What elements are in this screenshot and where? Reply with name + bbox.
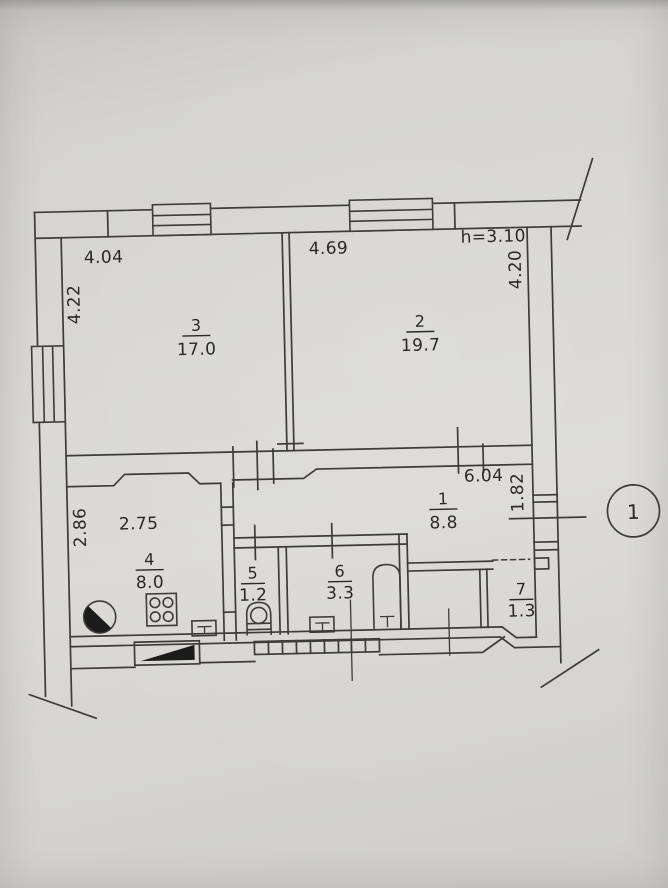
room-6-number: 6 <box>334 561 345 580</box>
middle-partition-wall <box>66 426 533 494</box>
section-marker: 1 <box>607 484 660 537</box>
room3-room2-partition <box>282 233 294 451</box>
room-6-area: 3.3 <box>326 583 355 604</box>
hall-room7-walls <box>408 561 494 629</box>
vent-box-bathroom <box>310 617 334 633</box>
window-room2 <box>349 198 433 231</box>
doorway-dashed-opening <box>493 559 530 560</box>
room-3-area: 17.0 <box>177 339 217 360</box>
room-2-area: 19.7 <box>401 335 441 356</box>
scanned-floorplan-photo: 1 3 17.0 2 19.7 1 8.8 4 8. <box>0 0 668 888</box>
balcony-hatch-triangle <box>140 645 194 661</box>
room-5-number: 5 <box>247 563 258 582</box>
dim-hall-depth: 1.82 <box>508 473 529 513</box>
room-4-number: 4 <box>144 550 155 569</box>
room-3-number: 3 <box>191 316 202 335</box>
dim-room2-depth: 4.20 <box>506 250 527 290</box>
dim-room2-width: 4.69 <box>308 238 348 259</box>
dim-room3-depth: 4.22 <box>64 285 85 325</box>
dim-room3-width: 4.04 <box>84 247 124 268</box>
room-4-area: 8.0 <box>136 573 165 594</box>
dim-kitchen-depth: 2.86 <box>70 508 91 548</box>
room-5-area: 1.2 <box>239 585 268 606</box>
dimension-labels: 4.04 4.69 h=3.10 4.20 4.22 6.04 1.82 2.8… <box>63 226 533 547</box>
section-marker-number: 1 <box>627 500 641 524</box>
kitchen-sink-symbol <box>83 601 116 634</box>
dim-kitchen-width: 2.75 <box>119 514 159 535</box>
dim-hall-length: 6.04 <box>464 466 504 487</box>
dim-ceiling-height: h=3.10 <box>460 226 526 247</box>
stove-symbol <box>146 593 177 626</box>
toilet-symbol <box>246 602 271 635</box>
room-2-number: 2 <box>415 312 426 331</box>
wc-bath-walls <box>234 522 409 635</box>
window-left-wall <box>32 346 66 423</box>
room-1-number: 1 <box>438 489 449 508</box>
left-exterior-wall <box>19 211 96 719</box>
room-7-area: 1.3 <box>507 601 536 622</box>
room-1-area: 8.8 <box>429 513 458 534</box>
kitchen-partition-wall <box>221 483 237 640</box>
room-7-number: 7 <box>516 579 527 598</box>
window-room3 <box>152 203 211 235</box>
bathtub-symbol <box>373 564 401 630</box>
windows <box>28 198 437 422</box>
floorplan-drawing: 1 3 17.0 2 19.7 1 8.8 4 8. <box>0 0 668 888</box>
